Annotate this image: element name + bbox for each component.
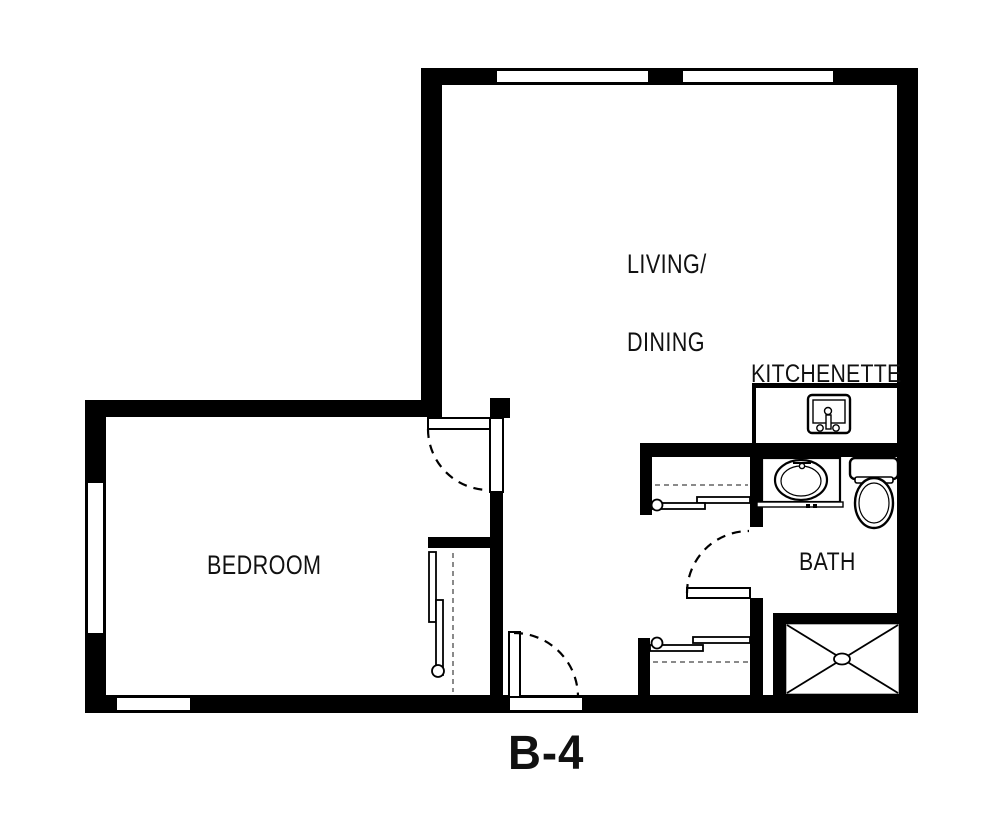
toilet-tank (850, 458, 898, 479)
sink-faucet-stem (826, 415, 831, 429)
bathroom-sink (757, 458, 843, 508)
bedroom-door (428, 418, 503, 492)
closet-slider-panel (436, 600, 443, 675)
entry-door-swing-arc (514, 633, 578, 697)
closet-slider-panel (429, 552, 436, 622)
wall-bedroom-door-pier (490, 398, 510, 418)
window-living-top-2 (683, 71, 833, 82)
vanity-ledge (757, 502, 843, 507)
wall-closet-divider (490, 492, 503, 698)
sink-faucet-handle (817, 425, 823, 431)
kitchenette-counter-left-edge (752, 383, 756, 443)
lower-hall-closet (650, 637, 750, 662)
wall-shower-top (773, 613, 897, 623)
living-dining-label: LIVING/ DINING (627, 199, 707, 407)
closet-door-pull (432, 665, 444, 677)
floor-plan-drawing (0, 0, 999, 836)
sink-faucet-handle (833, 425, 839, 431)
closet-door-pull (652, 638, 663, 649)
shower-drain (834, 654, 850, 665)
bedroom-closet (429, 552, 453, 692)
upper-hall-closet (652, 485, 751, 511)
bathroom-door (687, 531, 750, 598)
floor-plan: LIVING/ DINING BEDROOM KITCHENETTE BATH … (0, 0, 999, 836)
wall-lower-closet-left (638, 638, 650, 698)
living-dining-label-line1: LIVING/ (627, 251, 707, 277)
toilet (850, 458, 898, 528)
wall-bedroom-top (85, 400, 428, 417)
walls (85, 68, 918, 713)
closet-slider-panel (693, 637, 750, 643)
wall-bath-lower (750, 598, 763, 697)
bedroom-door-leaf (428, 418, 490, 429)
sink-faucet-knob (799, 463, 804, 468)
windows (88, 71, 833, 710)
wall-upper-closet-left (640, 443, 652, 515)
entry-door (509, 632, 578, 697)
window-bedroom-left (88, 483, 103, 633)
bathroom-door-swing-arc (687, 531, 749, 593)
bedroom-door-swing-arc (428, 429, 489, 490)
window-living-top-1 (497, 71, 648, 82)
kitchenette-sink (808, 395, 850, 433)
living-dining-label-line2: DINING (627, 329, 707, 355)
bathroom-door-leaf (687, 588, 750, 598)
vanity-tick (813, 504, 817, 508)
sink-bowl-inner (781, 466, 821, 496)
wall-bedroom-closet-top (428, 537, 503, 548)
bath-label: BATH (799, 548, 856, 577)
closet-door-pull (652, 500, 663, 511)
kitchenette-label: KITCHENETTE (751, 360, 901, 389)
wall-right (897, 68, 918, 713)
wall-top (423, 68, 913, 85)
sink-drain (825, 408, 832, 415)
bedroom-label: BEDROOM (207, 550, 321, 581)
shower (785, 623, 900, 695)
entry-door-leaf (509, 632, 520, 697)
toilet-bowl-inner (859, 483, 889, 523)
bedroom-door-jamb (490, 418, 503, 492)
wall-hall-band (640, 443, 918, 457)
vanity-tick (806, 504, 810, 508)
window-bedroom-bottom (117, 698, 190, 710)
plan-title: B-4 (508, 726, 584, 781)
wall-living-left (421, 68, 442, 417)
entry-threshold (510, 698, 582, 710)
wall-shower-left (773, 613, 785, 697)
